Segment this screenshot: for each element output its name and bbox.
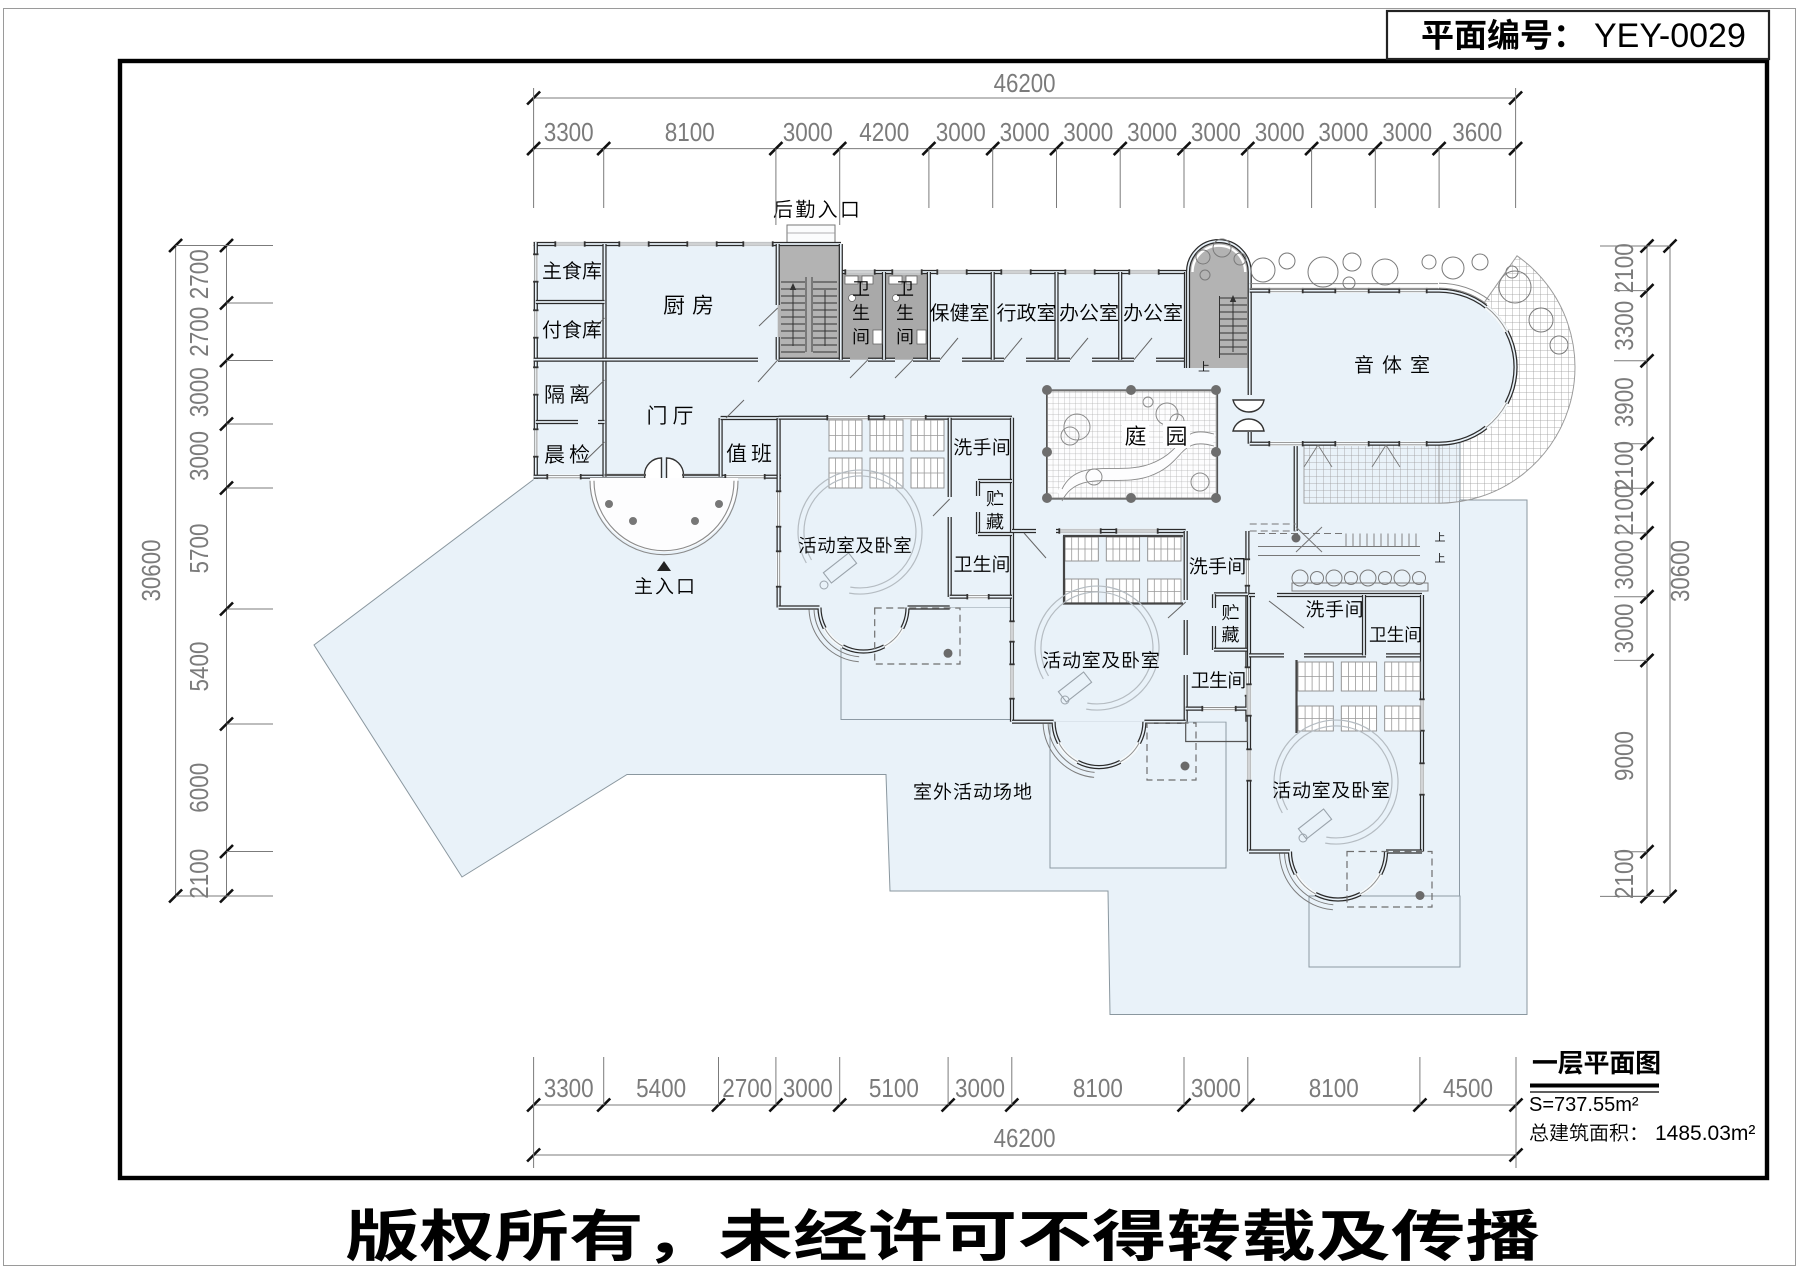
svg-text:3600: 3600: [1452, 117, 1502, 147]
svg-text:3000: 3000: [1000, 117, 1050, 147]
svg-text:3000: 3000: [955, 1073, 1005, 1103]
svg-text:46200: 46200: [994, 68, 1056, 98]
svg-text:1485.03m²: 1485.03m²: [1655, 1122, 1755, 1145]
svg-text:6000: 6000: [184, 763, 214, 813]
svg-text:30600: 30600: [1665, 540, 1695, 602]
svg-text:8100: 8100: [1309, 1073, 1359, 1103]
svg-text:2700: 2700: [184, 307, 214, 357]
svg-text:8100: 8100: [1073, 1073, 1123, 1103]
svg-text:5100: 5100: [869, 1073, 919, 1103]
svg-text:2100: 2100: [184, 849, 214, 899]
svg-text:3000: 3000: [1191, 1073, 1241, 1103]
svg-text:5400: 5400: [636, 1073, 686, 1103]
svg-text:S=737.55m²: S=737.55m²: [1529, 1094, 1639, 1116]
svg-text:3000: 3000: [1255, 117, 1305, 147]
svg-text:3000: 3000: [1318, 117, 1368, 147]
svg-text:3000: 3000: [1382, 117, 1432, 147]
svg-text:3000: 3000: [783, 1073, 833, 1103]
svg-text:2100: 2100: [1609, 849, 1639, 899]
svg-text:3300: 3300: [544, 117, 594, 147]
svg-text:2100: 2100: [1609, 441, 1639, 491]
svg-text:3300: 3300: [1609, 301, 1639, 351]
svg-text:4500: 4500: [1443, 1073, 1493, 1103]
svg-text:3000: 3000: [184, 367, 214, 417]
svg-text:2100: 2100: [1609, 243, 1639, 293]
svg-text:3000: 3000: [1127, 117, 1177, 147]
svg-text:YEY-0029: YEY-0029: [1594, 17, 1746, 55]
svg-text:3000: 3000: [783, 117, 833, 147]
svg-text:3000: 3000: [1191, 117, 1241, 147]
svg-text:3000: 3000: [936, 117, 986, 147]
svg-text:3000: 3000: [1063, 117, 1113, 147]
svg-text:2700: 2700: [722, 1073, 772, 1103]
svg-text:3000: 3000: [1609, 604, 1639, 654]
svg-text:3000: 3000: [1609, 540, 1639, 590]
svg-text:3000: 3000: [184, 431, 214, 481]
svg-text:9000: 9000: [1609, 731, 1639, 781]
svg-text:4200: 4200: [859, 117, 909, 147]
svg-text:2100: 2100: [1609, 486, 1639, 536]
svg-text:30600: 30600: [136, 540, 166, 602]
svg-text:8100: 8100: [665, 117, 715, 147]
svg-text:3300: 3300: [544, 1073, 594, 1103]
svg-text:5700: 5700: [184, 524, 214, 574]
svg-text:3900: 3900: [1609, 377, 1639, 427]
svg-text:5400: 5400: [184, 642, 214, 692]
svg-text:46200: 46200: [994, 1123, 1056, 1153]
svg-text:2700: 2700: [184, 249, 214, 299]
